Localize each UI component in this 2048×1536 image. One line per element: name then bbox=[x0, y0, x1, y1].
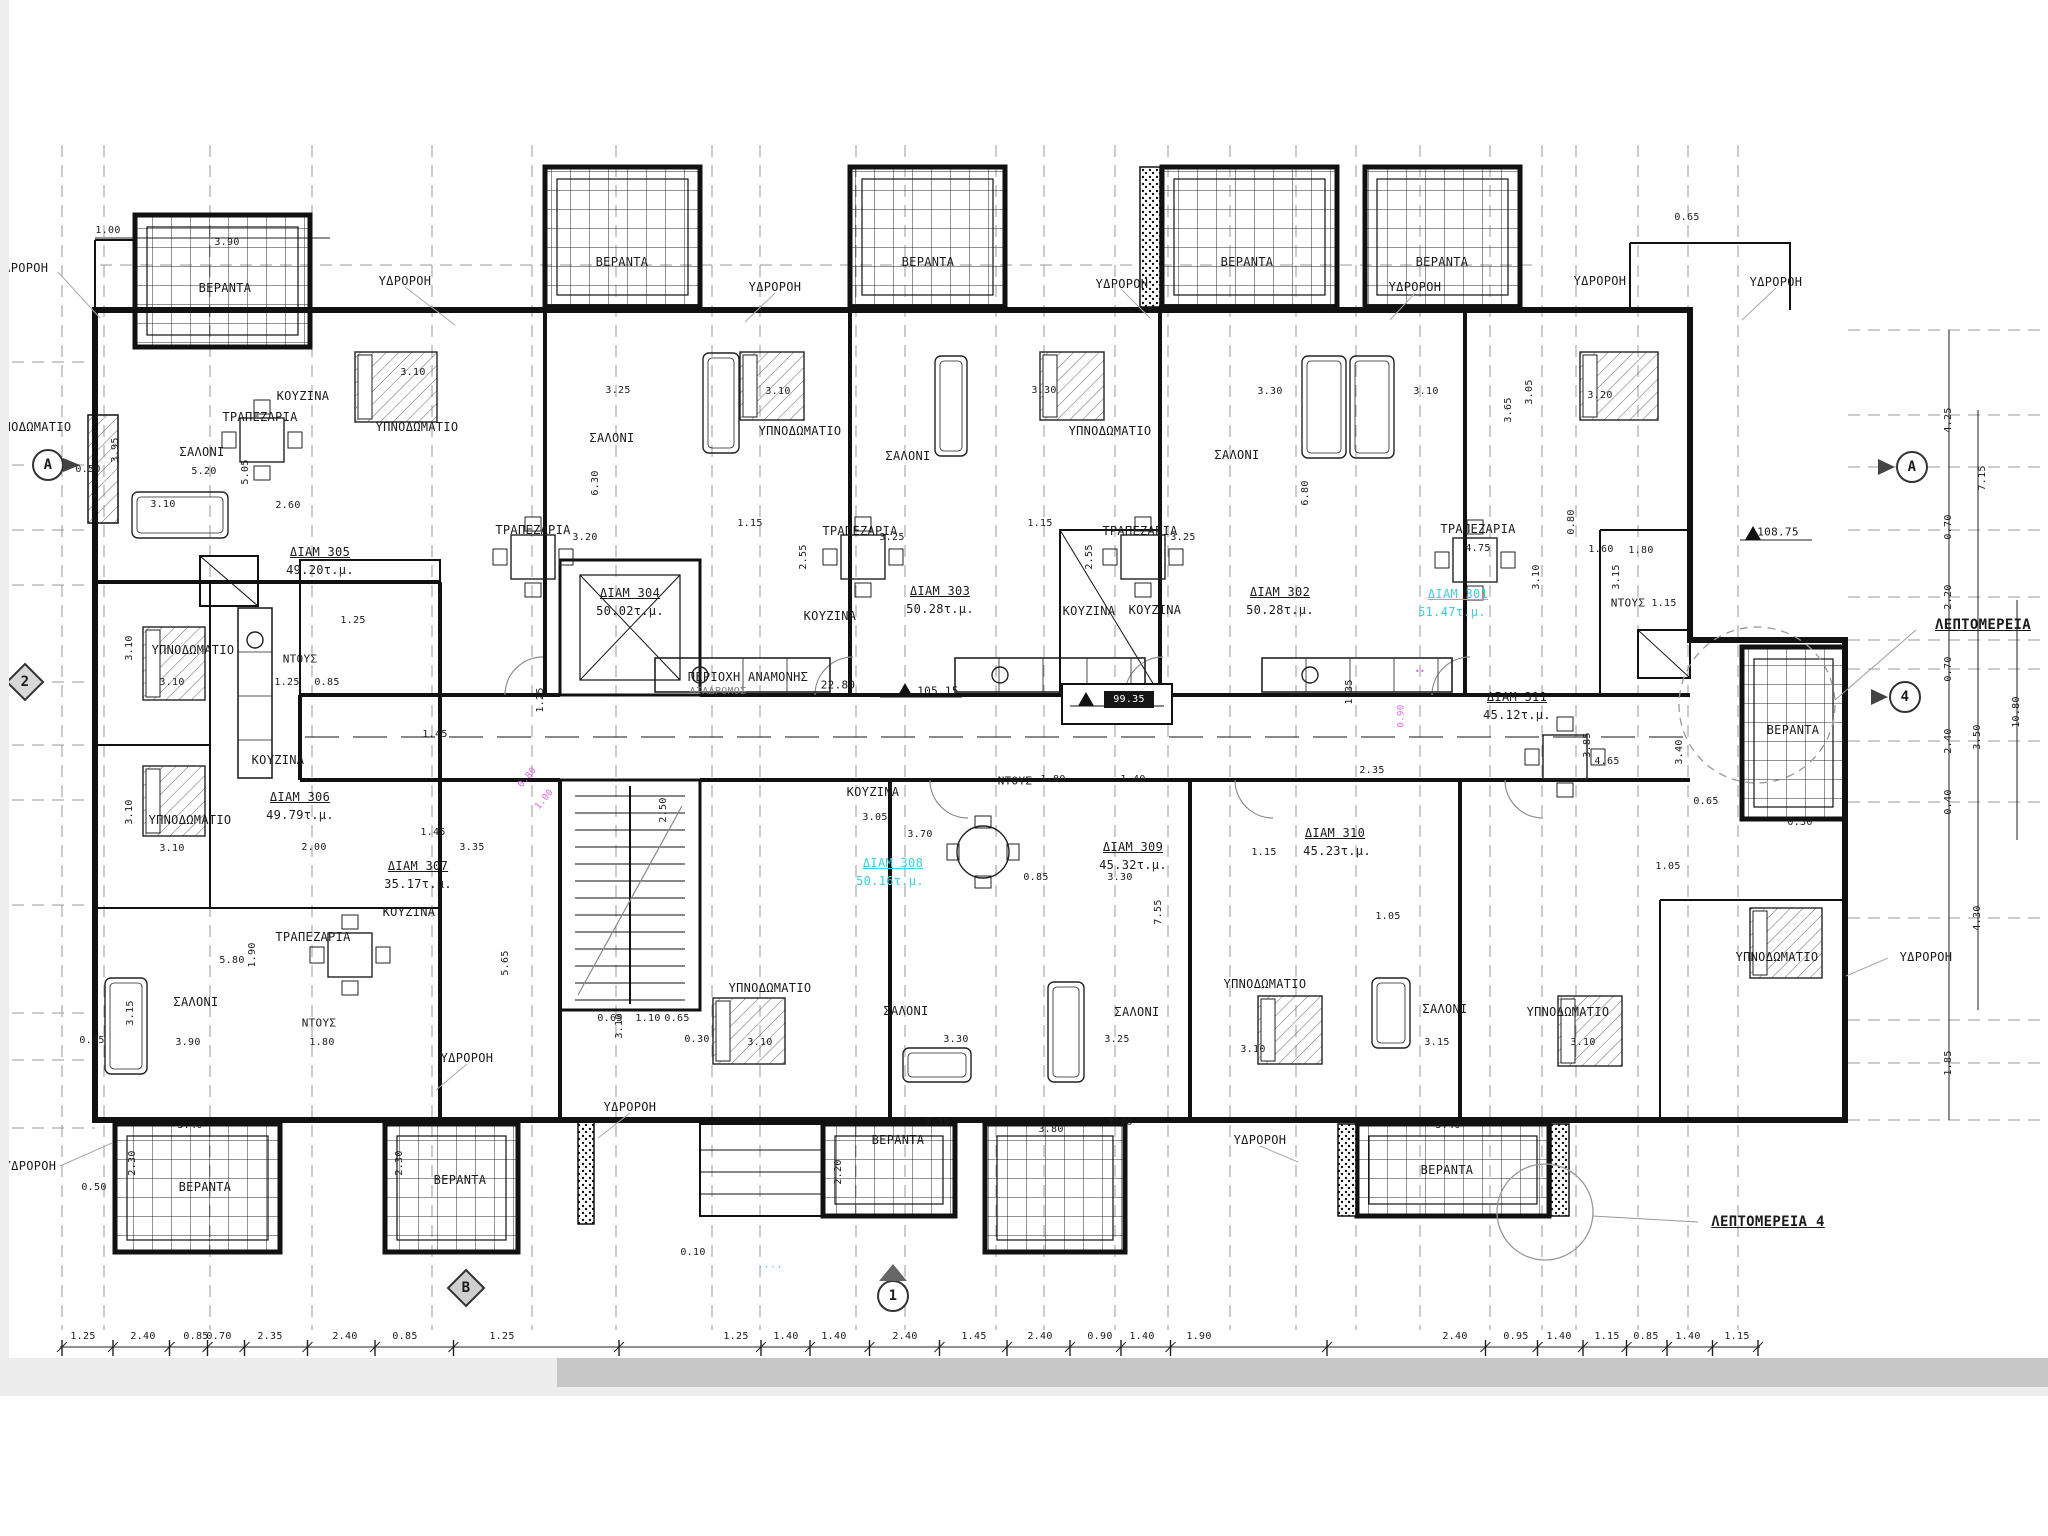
balcony bbox=[1365, 167, 1520, 307]
page-margin-bar bbox=[557, 1358, 2048, 1387]
balcony bbox=[1162, 167, 1337, 307]
axis-marker-1 bbox=[878, 1281, 908, 1311]
page-margin-left bbox=[0, 0, 9, 1396]
balcony bbox=[823, 1124, 955, 1216]
balcony bbox=[135, 215, 310, 347]
balcony bbox=[850, 167, 1005, 307]
balcony bbox=[385, 1124, 518, 1252]
balcony bbox=[115, 1124, 280, 1252]
balcony bbox=[1357, 1124, 1549, 1216]
axis-marker-4 bbox=[1890, 682, 1920, 712]
floorplan-sheet: ΒΕΡΑΝΤΑΒΕΡΑΝΤΑΒΕΡΑΝΤΑΒΕΡΑΝΤΑΒΕΡΑΝΤΑΒΕΡΑΝ… bbox=[0, 0, 2048, 1536]
axis-marker-A-right bbox=[1897, 452, 1927, 482]
floorplan-drawing bbox=[0, 0, 2048, 1536]
balcony bbox=[985, 1124, 1125, 1252]
balcony bbox=[545, 167, 700, 307]
axis-marker-A-left bbox=[33, 450, 63, 480]
level-value-highlight bbox=[1104, 691, 1154, 708]
